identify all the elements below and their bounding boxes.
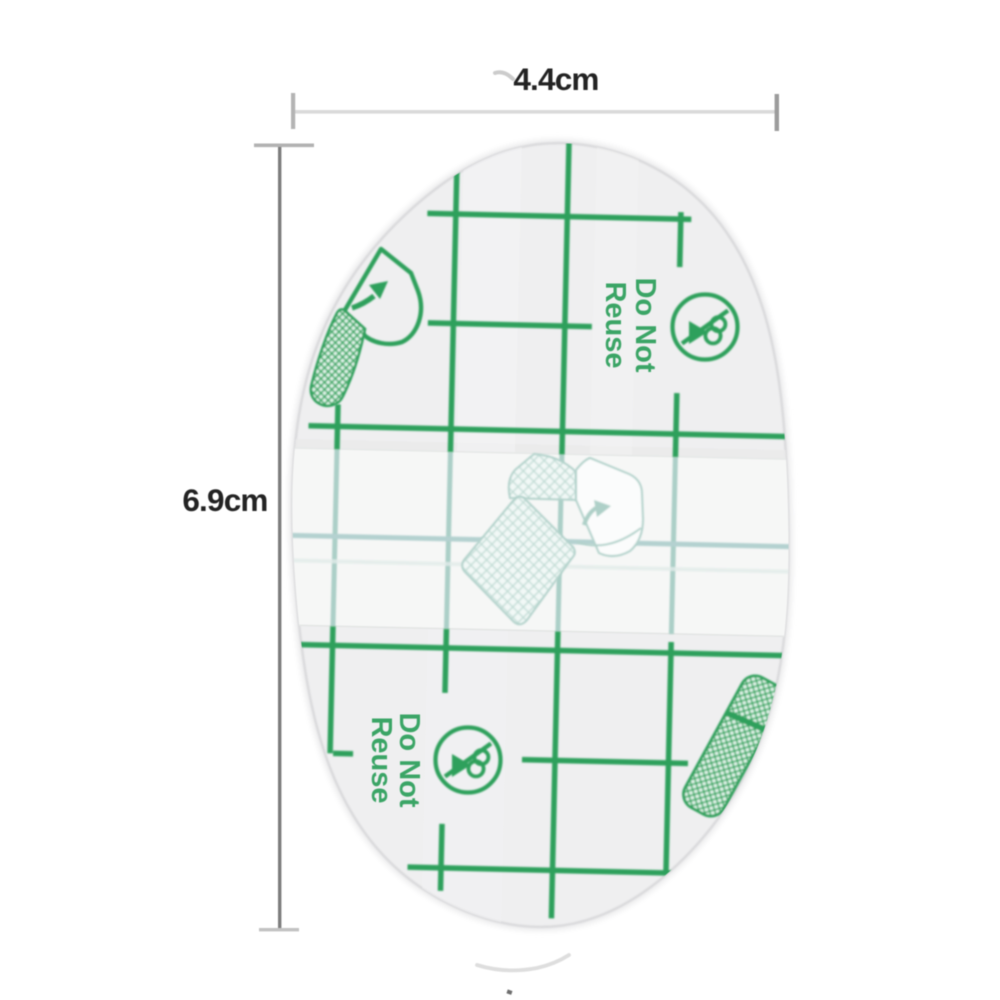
svg-text:Reuse: Reuse <box>365 716 397 803</box>
svg-text:6.9cm: 6.9cm <box>182 482 267 518</box>
svg-text:4.4cm: 4.4cm <box>513 61 598 97</box>
svg-text:Do Not: Do Not <box>629 277 661 372</box>
svg-text:Reuse: Reuse <box>599 281 631 368</box>
